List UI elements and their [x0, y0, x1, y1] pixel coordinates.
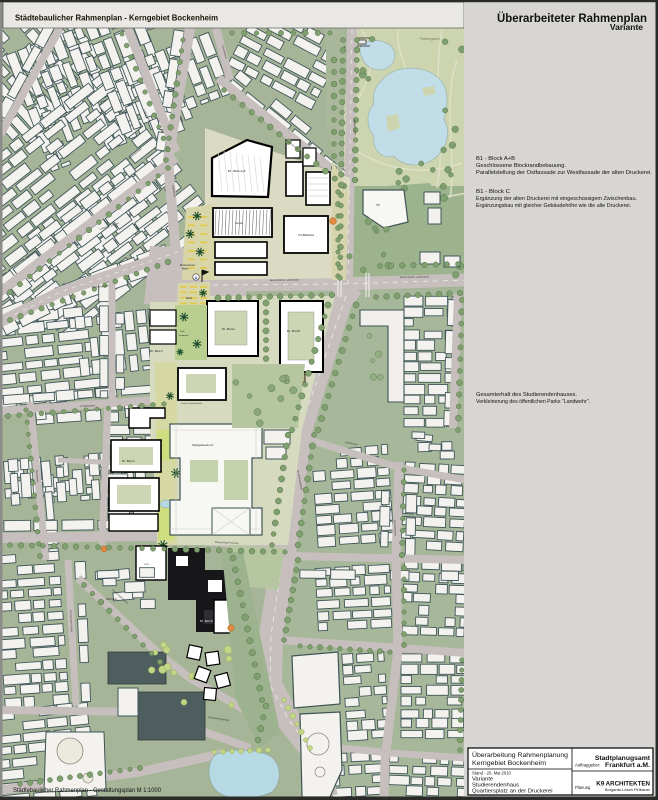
svg-text:B3 - Block A: B3 - Block A — [122, 460, 135, 463]
svg-text:Verkleinerung des öffentlichen: Verkleinerung des öffentlichen Parks "La… — [476, 399, 590, 405]
svg-text:B1 - Block A+B: B1 - Block A+B — [228, 169, 246, 173]
svg-text:B1 - Block A+B: B1 - Block A+B — [476, 156, 515, 162]
svg-text:Hauptgebaeude Uni: Hauptgebaeude Uni — [192, 444, 214, 447]
svg-text:XXIV: XXIV — [144, 564, 150, 566]
svg-text:Borgards.Lösch.Piribauer: Borgards.Lösch.Piribauer — [605, 787, 651, 792]
svg-text:Stand - 20. Mai 2010: Stand - 20. Mai 2010 — [472, 771, 512, 776]
svg-text:Planung: Planung — [575, 785, 591, 790]
svg-text:Quartiersplatz an der Druckere: Quartiersplatz an der Druckerei — [472, 789, 553, 795]
svg-text:B2 - Block A: B2 - Block A — [222, 328, 235, 331]
svg-text:B1 - Block C: B1 - Block C — [476, 189, 510, 195]
svg-text:Städtebaulicher Rahmenplan - G: Städtebaulicher Rahmenplan - Gestaltungs… — [13, 787, 161, 794]
svg-text:Auftraggeber:: Auftraggeber: — [575, 763, 600, 768]
svg-text:Bockenheimer Landstrasse: Bockenheimer Landstrasse — [270, 278, 300, 282]
svg-text:B2 - Block C: B2 - Block C — [150, 351, 163, 353]
svg-text:Pharmazie: Pharmazie — [106, 598, 118, 601]
svg-text:Überarbeitung Rahmenplanung: Überarbeitung Rahmenplanung — [472, 752, 569, 759]
svg-text:Warte: Warte — [182, 268, 189, 271]
svg-text:Stadtplanugsamt: Stadtplanugsamt — [595, 755, 651, 762]
svg-text:HfV: HfV — [376, 204, 380, 207]
svg-text:Städtebaulicher Rahmenplan - K: Städtebaulicher Rahmenplan - Kerngebiet … — [15, 13, 218, 23]
svg-text:Ergänzungsbau mit gleicher Geb: Ergänzungsbau mit gleicher Gebäudehöhe w… — [476, 203, 631, 209]
svg-text:Zeppelin Allee: Zeppelin Allee — [353, 120, 357, 136]
svg-text:Ergänzung der alten Druckerei: Ergänzung der alten Druckerei mit einges… — [476, 196, 637, 202]
svg-text:Geschlossene Blockrandbebauung: Geschlossene Blockrandbebauung. — [476, 163, 566, 169]
svg-text:Campus Gewerbehoefe: Campus Gewerbehoefe — [181, 403, 203, 405]
svg-text:Uni-Bibliothek: Uni-Bibliothek — [298, 233, 315, 237]
svg-text:B2 - Block B: B2 - Block B — [287, 330, 301, 333]
svg-text:Frankfurt a.M.: Frankfurt a.M. — [605, 762, 650, 769]
svg-text:Markt: Markt — [186, 297, 192, 300]
svg-text:Variante: Variante — [610, 22, 643, 32]
svg-text:"Landwehr": "Landwehr" — [178, 334, 189, 337]
svg-text:Kerngebiet Bockenheim: Kerngebiet Bockenheim — [472, 760, 546, 767]
svg-text:Palmengarten: Palmengarten — [420, 37, 440, 41]
svg-text:Bockenheimer Landstrasse: Bockenheimer Landstrasse — [400, 275, 430, 279]
svg-text:Depot: Depot — [235, 221, 243, 225]
svg-text:B3 - Block B: B3 - Block B — [200, 621, 213, 623]
svg-text:Parallelstellung der Ostfassad: Parallelstellung der Ostfassade zur West… — [476, 170, 652, 176]
svg-text:Gesamterhalt des Studierendenh: Gesamterhalt des Studierendenhauses. — [476, 392, 577, 398]
